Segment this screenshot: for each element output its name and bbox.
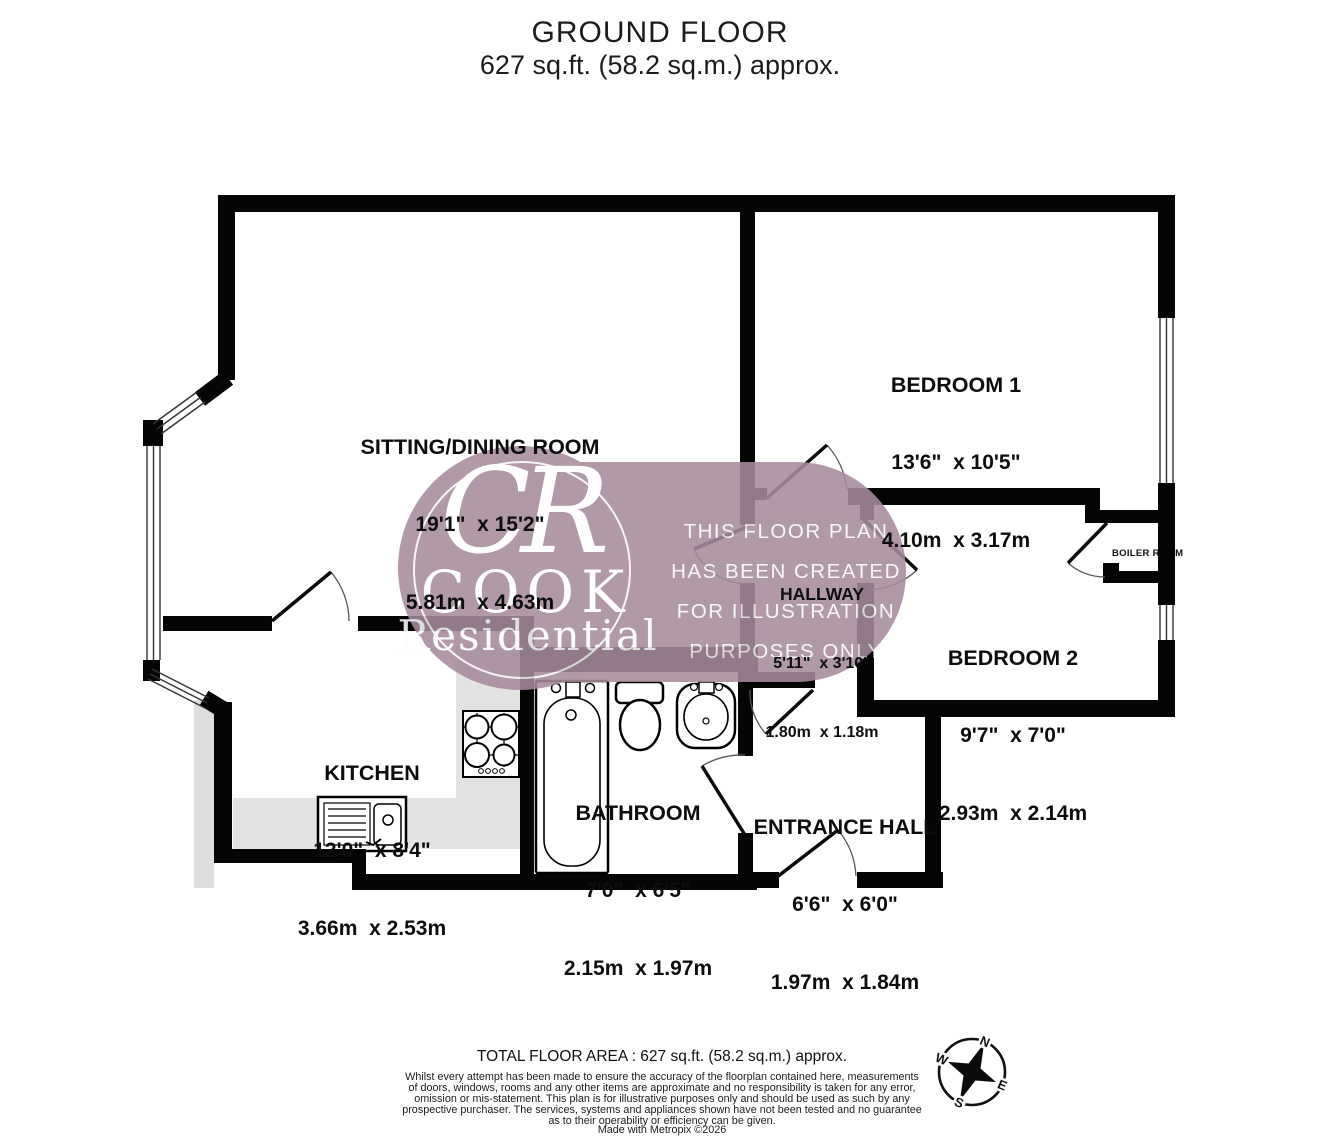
basin-icon — [677, 682, 735, 748]
floorplan-page: GROUND FLOOR 627 sq.ft. (58.2 sq.m.) app… — [0, 0, 1320, 1139]
bedroom1-window — [1158, 318, 1175, 483]
room-label-bedroom1: BEDROOM 1 13'6" x 10'5" 4.10m x 3.17m — [882, 320, 1030, 606]
compass-icon: N E S W — [933, 1033, 1010, 1111]
compass-s: S — [952, 1094, 966, 1111]
bedroom2-window — [1158, 605, 1175, 640]
room-label-bedroom2: BEDROOM 2 9'7" x 7'0" 2.93m x 2.14m — [939, 593, 1087, 879]
compass-w: W — [933, 1050, 951, 1069]
room-label-kitchen: KITCHEN 12'0" x 8'4" 3.66m x 2.53m — [298, 708, 446, 994]
hob-icon — [463, 711, 519, 777]
room-label-sitting: SITTING/DINING ROOM 19'1" x 15'2" 5.81m … — [361, 382, 600, 668]
compass-n: N — [978, 1033, 993, 1050]
room-label-hallway: HALLWAY 5'11" x 3'10" 1.80m x 1.18m — [766, 537, 879, 790]
room-label-bathroom: BATHROOM 7'0" x 6'5" 2.15m x 1.97m — [564, 748, 712, 1034]
toilet-icon — [616, 682, 663, 750]
room-label-entrance: ENTRANCE HALL 6'6" x 6'0" 1.97m x 1.84m — [754, 762, 937, 1048]
bay-corner-walls — [200, 378, 228, 712]
